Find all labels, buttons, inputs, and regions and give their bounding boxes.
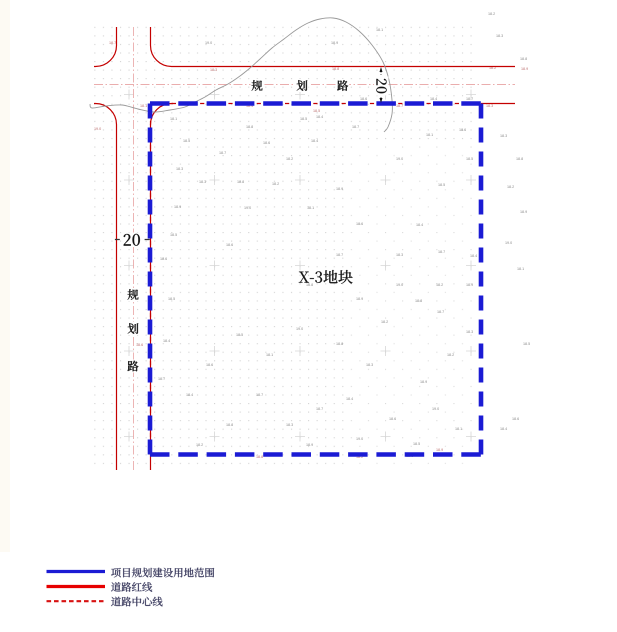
svg-text:18.2: 18.2 [447,353,454,357]
svg-text:18.7: 18.7 [438,250,445,254]
svg-text:18.9: 18.9 [306,443,313,447]
svg-text:18.6: 18.6 [160,257,167,261]
svg-text:18.3: 18.3 [500,134,507,138]
svg-text:18.8: 18.8 [336,342,343,346]
svg-text:18.4: 18.4 [470,254,477,258]
svg-text:18.7: 18.7 [352,125,359,129]
svg-text:18.3: 18.3 [199,180,206,184]
svg-text:18.4: 18.4 [186,393,193,397]
svg-text:19.0: 19.0 [505,241,512,245]
svg-text:18.9: 18.9 [331,41,338,45]
svg-text:18.2: 18.2 [196,443,203,447]
svg-text:18.1: 18.1 [170,117,177,121]
svg-text:18.8: 18.8 [226,423,233,427]
svg-text:18.3: 18.3 [366,363,373,367]
svg-text:18.5: 18.5 [170,233,177,237]
svg-text:18.4: 18.4 [416,223,423,227]
svg-text:18.3: 18.3 [286,423,293,427]
svg-text:18.7: 18.7 [109,41,116,45]
svg-text:18.6: 18.6 [263,141,270,145]
svg-text:19.0: 19.0 [432,407,439,411]
svg-text:18.5: 18.5 [523,342,530,346]
svg-text:18.5: 18.5 [313,109,320,113]
svg-text:18.3: 18.3 [210,68,217,72]
svg-text:19.0: 19.0 [396,283,403,287]
svg-text:18.6: 18.6 [226,243,233,247]
svg-text:18.2: 18.2 [381,320,388,324]
svg-text:18.8: 18.8 [246,125,253,129]
svg-text:18.1: 18.1 [517,267,524,271]
svg-text:18.3: 18.3 [396,253,403,257]
svg-text:18.8: 18.8 [256,455,263,459]
svg-text:18.7: 18.7 [158,377,165,381]
svg-text:18.9: 18.9 [174,205,181,209]
svg-text:18.4: 18.4 [346,397,353,401]
svg-text:18.5: 18.5 [236,333,243,337]
svg-text:18.5: 18.5 [438,183,445,187]
svg-text:18.1: 18.1 [140,104,147,108]
svg-text:18.4: 18.4 [430,97,437,101]
svg-text:18.7: 18.7 [396,104,403,108]
svg-text:19.0: 19.0 [205,41,212,45]
svg-text:18.2: 18.2 [436,283,443,287]
svg-text:18.6: 18.6 [136,343,143,347]
svg-text:18.5: 18.5 [183,139,190,143]
svg-text:18.9: 18.9 [356,297,363,301]
svg-text:18.5: 18.5 [168,297,175,301]
svg-text:18.2: 18.2 [272,182,279,186]
svg-text:18.6: 18.6 [512,417,519,421]
svg-text:19.0: 19.0 [396,157,403,161]
svg-text:18.1: 18.1 [266,353,273,357]
svg-text:18.5: 18.5 [413,442,420,446]
svg-text:18.3: 18.3 [496,34,503,38]
svg-text:18.1: 18.1 [307,206,314,210]
svg-text:18.3: 18.3 [466,330,473,334]
svg-text:18.4: 18.4 [163,339,170,343]
svg-text:18.9: 18.9 [436,448,443,452]
svg-text:19.0: 19.0 [244,206,251,210]
svg-text:18.7: 18.7 [336,253,343,257]
svg-text:18.4: 18.4 [316,115,323,119]
svg-text:19.0: 19.0 [296,327,303,331]
svg-text:19.0: 19.0 [356,437,363,441]
svg-text:18.9: 18.9 [466,283,473,287]
svg-text:18.7: 18.7 [316,407,323,411]
svg-text:18.3: 18.3 [486,104,493,108]
svg-text:18.6: 18.6 [459,128,466,132]
svg-text:18.8: 18.8 [520,57,527,61]
svg-text:18.2: 18.2 [507,185,514,189]
svg-text:18.7: 18.7 [437,310,444,314]
svg-text:18.1: 18.1 [455,427,462,431]
svg-text:18.1: 18.1 [376,28,383,32]
svg-text:18.6: 18.6 [206,363,213,367]
svg-text:18.8: 18.8 [237,180,244,184]
svg-text:19.0: 19.0 [94,127,101,131]
svg-text:18.5: 18.5 [466,157,473,161]
svg-text:18.2: 18.2 [286,157,293,161]
svg-text:18.7: 18.7 [219,151,226,155]
svg-text:18.4: 18.4 [500,427,507,431]
svg-text:18.9: 18.9 [520,210,527,214]
svg-text:18.9: 18.9 [521,67,528,71]
svg-text:18.1: 18.1 [426,133,433,137]
svg-text:18.9: 18.9 [420,380,427,384]
svg-text:18.4: 18.4 [311,139,318,143]
svg-text:18.5: 18.5 [300,117,307,121]
svg-text:18.8: 18.8 [332,67,339,71]
svg-text:18.3: 18.3 [176,167,183,171]
svg-text:18.2: 18.2 [488,12,495,16]
svg-text:18.7: 18.7 [256,393,263,397]
svg-text:18.7: 18.7 [466,97,473,101]
svg-text:18.8: 18.8 [306,283,313,287]
svg-text:18.6: 18.6 [360,97,367,101]
svg-text:18.6: 18.6 [356,222,363,226]
svg-text:18.8: 18.8 [415,299,422,303]
svg-text:18.9: 18.9 [336,187,343,191]
svg-text:18.6: 18.6 [389,417,396,421]
svg-text:18.8: 18.8 [516,157,523,161]
